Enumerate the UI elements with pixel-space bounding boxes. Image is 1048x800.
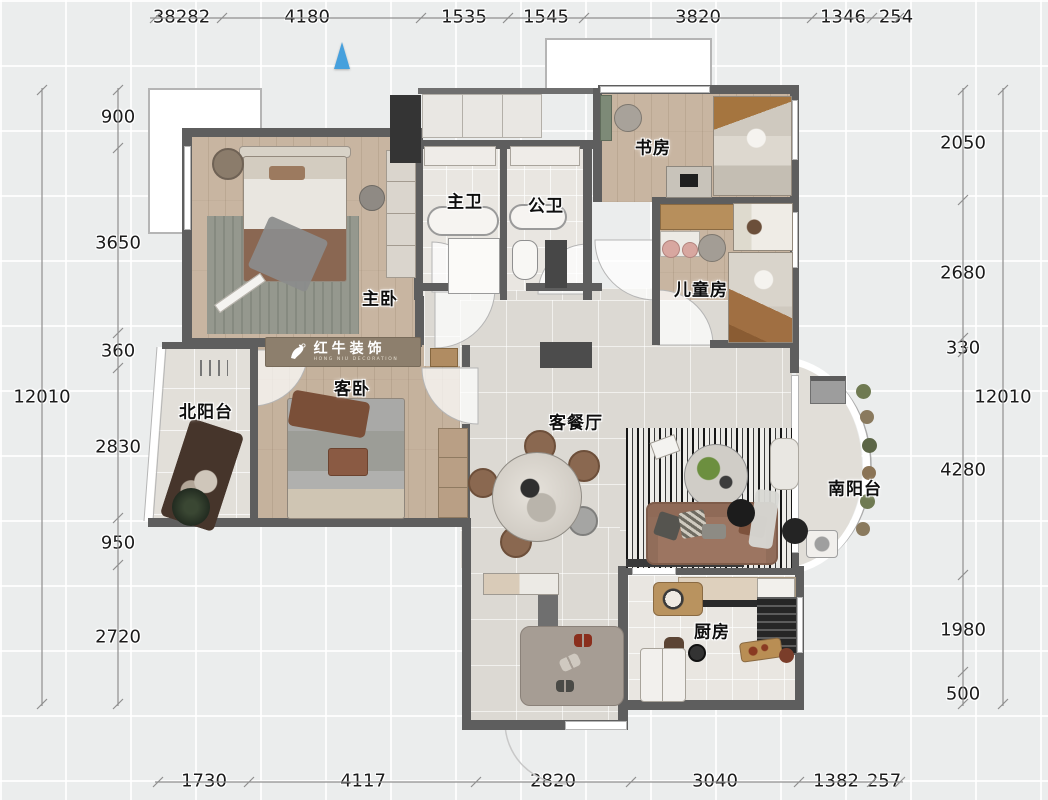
public-bath-toilet [512, 240, 538, 280]
sofa-pillow-gray [702, 524, 726, 539]
wall [185, 128, 423, 137]
master-stool [359, 185, 385, 211]
room-label-kids-room: 儿童房 [674, 276, 728, 301]
dim-label-bottom-257: 257 [867, 771, 901, 792]
dim-label-top-3820: 3820 [675, 7, 721, 28]
study-monitor [680, 174, 698, 187]
dim-label-right-2050: 2050 [940, 133, 986, 154]
brand-subtitle: HONG NIU DECORATION [314, 358, 399, 363]
shoes-red [574, 634, 592, 647]
dim-label-left-total: 12010 [13, 387, 70, 408]
dim-label-top-4180: 4180 [284, 7, 330, 28]
public-bath-cabinet [545, 240, 567, 288]
public-bath-vanity [510, 146, 580, 166]
wall [162, 342, 254, 349]
dim-label-top-1545: 1545 [523, 7, 569, 28]
wall [790, 345, 799, 373]
dim-label-left-950: 950 [101, 533, 135, 554]
kitchen-mortar [688, 644, 706, 662]
dim-label-top-282: 282 [176, 7, 210, 28]
window-study-north [600, 86, 710, 93]
hall-cabinets [422, 94, 542, 138]
floorplan-page: { "logo": { "brand": "红牛装饰", "subtitle":… [0, 0, 1048, 800]
wall [462, 520, 471, 725]
wall [652, 197, 660, 345]
balcony-plant-pot [862, 438, 877, 453]
room-label-master-bedroom: 主卧 [362, 285, 398, 310]
dim-label-bottom-2820: 2820 [530, 771, 576, 792]
window-study-east [792, 100, 798, 160]
brand-name: 红牛装饰 [314, 342, 399, 356]
master-bed-cushion [269, 166, 305, 180]
kitchen-pot [779, 648, 794, 663]
kids-bed-lower [728, 252, 793, 343]
dim-label-top-1535: 1535 [441, 7, 487, 28]
north-arrow-icon [334, 42, 350, 69]
study-bed [713, 96, 792, 196]
bull-icon [288, 342, 308, 362]
wall [500, 143, 507, 300]
study-chair [614, 104, 642, 132]
dim-label-left-360: 360 [101, 341, 135, 362]
floor-lamp [727, 499, 755, 527]
dim-label-right-500: 500 [946, 684, 980, 705]
balcony-plant-pot [856, 522, 870, 536]
shoe-cabinet [483, 573, 559, 595]
dim-label-left-900: 900 [101, 107, 135, 128]
guest-wardrobe [438, 428, 468, 518]
kitchen-dark-strip [697, 600, 759, 607]
shoes-dark [556, 680, 574, 692]
kids-desk [660, 204, 736, 230]
dim-label-right-4280: 4280 [940, 460, 986, 481]
brand-text: 红牛装饰 HONG NIU DECORATION [314, 342, 399, 363]
side-table-black [782, 518, 808, 544]
balcony-plant-pot [860, 410, 874, 424]
kids-chair-pink [662, 240, 680, 258]
balcony-cabinet [810, 376, 846, 404]
wall [255, 518, 471, 527]
dim-label-right-2680: 2680 [940, 263, 986, 284]
guest-cabinet [430, 348, 458, 367]
dim-label-left-2720: 2720 [95, 627, 141, 648]
dim-label-left-3650: 3650 [95, 233, 141, 254]
dim-label-right-1980: 1980 [940, 620, 986, 641]
balcony-plant [172, 488, 210, 526]
dim-label-bottom-1382: 1382 [813, 771, 859, 792]
dim-label-top-1346: 1346 [820, 7, 866, 28]
master-wardrobe [386, 150, 416, 278]
washing-machine [806, 530, 838, 558]
dim-label-left-2830: 2830 [95, 437, 141, 458]
dim-label-bottom-4117: 4117 [340, 771, 386, 792]
room-label-south-balcony: 南阳台 [828, 475, 882, 500]
room-label-public-bath: 公卫 [528, 192, 564, 217]
drying-rack [200, 360, 228, 376]
brand-banner: 红牛装饰 HONG NIU DECORATION [265, 337, 421, 367]
bay-window-northeast [545, 38, 712, 91]
room-label-master-bath: 主卫 [447, 188, 483, 213]
wall [182, 238, 192, 346]
dim-label-top-254: 254 [879, 7, 913, 28]
study-shelf [600, 95, 612, 141]
room-label-kitchen: 厨房 [694, 618, 730, 643]
wall [462, 345, 470, 367]
kids-bed-upper [733, 203, 793, 251]
master-bath-vanity [424, 146, 496, 166]
window-master-west [184, 146, 191, 230]
fridge [640, 648, 686, 702]
dim-label-right-330: 330 [946, 338, 980, 359]
dim-label-right-total: 12010 [974, 387, 1031, 408]
room-label-north-balcony: 北阳台 [179, 398, 233, 423]
wall [583, 143, 592, 300]
guest-bed-cushion [328, 448, 368, 476]
window-kitchen-east [797, 597, 803, 653]
dim-label-bottom-1730: 1730 [181, 771, 227, 792]
room-label-study: 书房 [635, 134, 671, 159]
room-label-living-dining: 客餐厅 [549, 409, 603, 434]
entry-door-opening [565, 721, 627, 730]
kids-chair-pink-2 [682, 242, 698, 258]
kids-chair-gray [698, 234, 726, 262]
kitchen-door-opening [632, 567, 676, 575]
armchair-white [770, 438, 799, 490]
wall [250, 345, 258, 520]
master-bath-shower [448, 238, 500, 294]
master-armchair [212, 148, 244, 180]
dining-table [492, 452, 582, 542]
hall-wardrobe-dark [390, 95, 421, 163]
room-label-guest-bedroom: 客卧 [334, 375, 370, 400]
dim-label-bottom-3040: 3040 [692, 771, 738, 792]
kitchen-island [653, 582, 703, 616]
tv-cabinet-wall [540, 342, 592, 368]
balcony-plant-pot [856, 384, 871, 399]
